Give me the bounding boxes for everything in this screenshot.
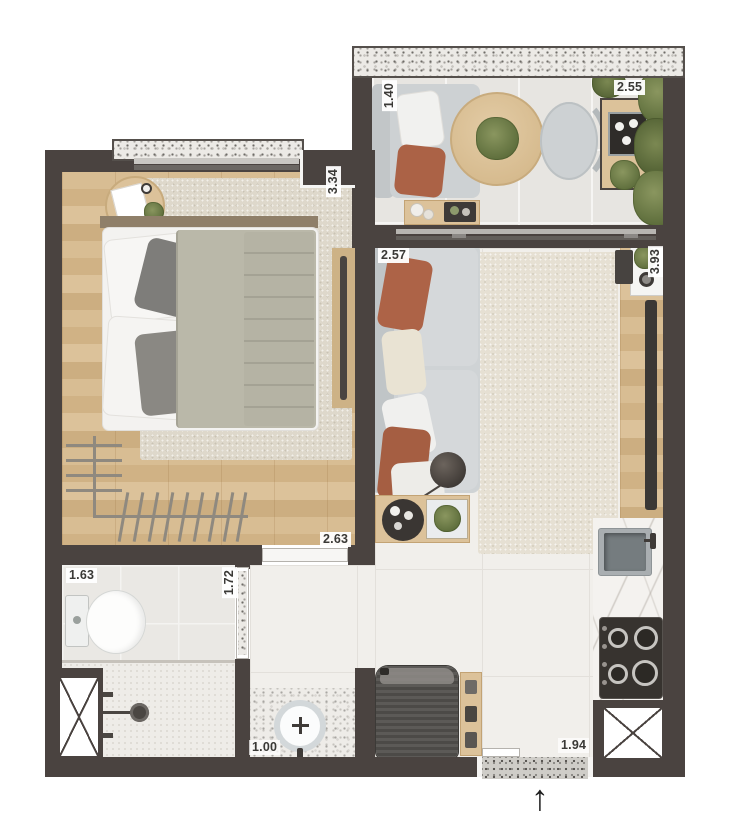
balcony-chair-back	[536, 96, 608, 184]
clothes-rack-hanger	[66, 489, 122, 492]
entry-jamb	[477, 757, 482, 777]
clothes-rack-hanger	[66, 459, 122, 462]
toilet-flush-button	[73, 616, 81, 624]
bathroom-hall-wall-lower	[235, 659, 250, 757]
dim-bathroom-depth: 1.72	[222, 567, 237, 598]
door-handle	[452, 234, 466, 238]
north-arrow-icon: ↑	[518, 776, 562, 820]
shelf-item	[465, 732, 477, 748]
dim-bathroom-width: 1.63	[66, 568, 97, 583]
dim-bedroom-width: 2.63	[320, 532, 351, 547]
dim-living-depth: 3.93	[648, 246, 663, 277]
bed-headboard	[100, 216, 318, 228]
washing-machine-button	[380, 668, 389, 675]
kitchen-sink-basin	[604, 533, 646, 571]
tray-cup	[404, 511, 413, 520]
side-table-plant	[434, 505, 461, 532]
bed-duvet-quilted	[244, 232, 314, 426]
entry-stub-wall	[355, 668, 375, 757]
grill-knob	[629, 119, 638, 128]
stove-burner	[608, 664, 628, 684]
floor-plan: 1.40 2.55 3.34 2.57 3.93 2.63 1.63 1.72 …	[0, 0, 735, 835]
tv	[645, 300, 657, 510]
dim-entry-width: 1.94	[558, 738, 589, 753]
door-handle	[624, 234, 638, 238]
dim-balcony-depth: 1.40	[382, 80, 397, 111]
shower-glass-divider	[62, 660, 235, 663]
stove-burner	[634, 626, 658, 650]
clothes-rack-rail-vertical	[93, 436, 96, 518]
balcony-vase	[410, 203, 424, 217]
washbasin-drain-cross-v	[299, 717, 302, 734]
shaft-right	[602, 706, 664, 760]
bedroom-bottom-wall-left	[45, 545, 262, 565]
clothes-rack-hanger	[66, 444, 122, 447]
balcony-pillow-white	[394, 89, 445, 151]
balcony-pillow-terracotta	[394, 144, 447, 199]
bottom-wall-left	[45, 757, 482, 777]
bedroom-living-wall	[355, 172, 375, 545]
tray-bottle	[450, 206, 459, 215]
side-table-tray	[382, 499, 424, 541]
toilet-bowl	[86, 590, 146, 654]
tray-cup	[394, 522, 402, 530]
grill-knob	[615, 122, 624, 131]
shelf-item	[465, 680, 477, 694]
tray-bottle	[462, 208, 470, 216]
dim-balcony-width: 2.55	[614, 80, 645, 95]
balcony-vase	[423, 209, 434, 220]
floor-lamp-head	[430, 452, 466, 488]
kitchen-faucet-spout	[644, 539, 652, 542]
shaft-left	[58, 676, 100, 758]
stove-knob	[602, 680, 607, 685]
bedroom-window-frame	[134, 158, 299, 164]
turntable	[615, 250, 633, 284]
entry-jamb	[588, 757, 593, 777]
entry-door-leaf	[482, 748, 520, 757]
balcony-sliding-door-glass	[396, 236, 656, 240]
stove-knob	[602, 644, 607, 649]
bathroom-door-glass-panel	[238, 571, 247, 655]
dim-bedroom-depth: 3.34	[326, 166, 341, 197]
dim-living-width: 2.57	[378, 248, 409, 263]
shelf-item	[465, 706, 477, 722]
shower-head	[130, 703, 149, 722]
right-outer-wall	[663, 248, 685, 777]
tray-cup	[390, 506, 400, 516]
bedroom-window-glass	[134, 165, 299, 170]
stove-burner	[608, 628, 628, 648]
living-rug	[478, 252, 618, 554]
grill-knob	[622, 136, 631, 145]
wardrobe-handle	[340, 256, 347, 400]
dim-washbasin-width: 1.00	[249, 740, 280, 755]
sofa-pillow-cream	[381, 328, 427, 396]
balcony-parapet	[352, 46, 685, 78]
bedroom-sliding-door	[262, 548, 348, 562]
balcony-right-wall	[663, 48, 685, 248]
stove-knob	[602, 662, 607, 667]
stove-burner	[632, 660, 658, 686]
balcony-tray	[444, 202, 476, 222]
nightstand-cup	[141, 183, 152, 194]
clothes-rack-rail-horizontal	[95, 515, 248, 518]
balcony-sliding-door-frame	[396, 229, 656, 234]
clothes-rack-hanger	[66, 474, 122, 477]
washing-machine-lid	[380, 668, 454, 684]
table-centerpiece-plant	[476, 117, 519, 160]
bedroom-bottom-wall-right	[348, 545, 375, 565]
stove-knob	[602, 626, 607, 631]
